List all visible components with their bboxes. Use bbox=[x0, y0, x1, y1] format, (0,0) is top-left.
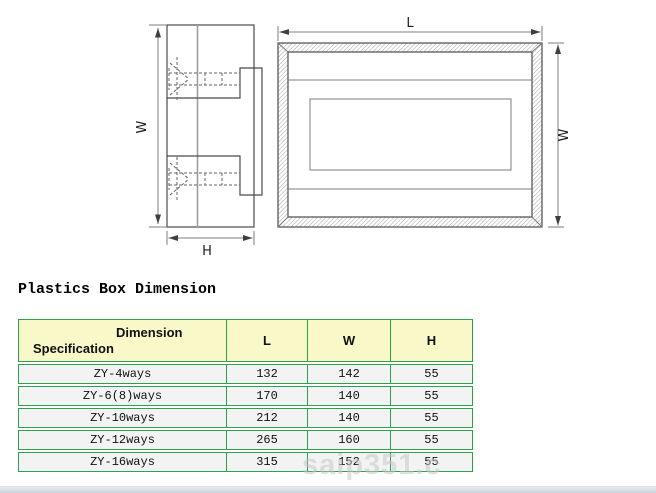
h-cell: 55 bbox=[391, 430, 473, 450]
h-cell: 55 bbox=[391, 364, 473, 384]
technical-drawings: W H L W bbox=[0, 0, 656, 272]
w-cell: 160 bbox=[308, 430, 391, 450]
w-cell: 140 bbox=[308, 408, 391, 428]
header-col-h: H bbox=[391, 319, 473, 362]
header-col-l: L bbox=[227, 319, 308, 362]
h-cell: 55 bbox=[391, 408, 473, 428]
h-cell: 55 bbox=[391, 386, 473, 406]
w-cell: 140 bbox=[308, 386, 391, 406]
w-cell: 152 bbox=[308, 452, 391, 472]
spec-cell: ZY-6(8)ways bbox=[18, 386, 227, 406]
l-cell: 212 bbox=[227, 408, 308, 428]
page: W H L W Plastics Box Dimen bbox=[0, 0, 656, 493]
table-header-row: Dimension Specification L W H bbox=[18, 319, 473, 362]
top-view-width-label: W bbox=[557, 128, 572, 141]
spec-cell: ZY-10ways bbox=[18, 408, 227, 428]
table-row: ZY-16ways 315 152 55 bbox=[18, 452, 473, 472]
l-cell: 170 bbox=[227, 386, 308, 406]
table-row: ZY-12ways 265 160 55 bbox=[18, 430, 473, 450]
bottom-bar bbox=[0, 486, 656, 493]
side-view-width-label: W bbox=[135, 120, 150, 133]
spec-cell: ZY-16ways bbox=[18, 452, 227, 472]
side-view-flange-profile bbox=[167, 68, 262, 195]
spec-cell: ZY-12ways bbox=[18, 430, 227, 450]
header-dimension-label: Dimension bbox=[116, 325, 182, 340]
w-cell: 142 bbox=[308, 364, 391, 384]
side-view-body-outline bbox=[167, 25, 254, 227]
l-cell: 265 bbox=[227, 430, 308, 450]
table-row: ZY-10ways 212 140 55 bbox=[18, 408, 473, 428]
side-view-height-label: H bbox=[202, 244, 212, 259]
table-row: ZY-4ways 132 142 55 bbox=[18, 364, 473, 384]
table-row: ZY-6(8)ways 170 140 55 bbox=[18, 386, 473, 406]
screw-hidden-lines-bottom bbox=[169, 157, 240, 201]
l-cell: 132 bbox=[227, 364, 308, 384]
l-cell: 315 bbox=[227, 452, 308, 472]
top-view-length-label: L bbox=[406, 16, 414, 31]
header-col-w: W bbox=[308, 319, 391, 362]
page-title: Plastics Box Dimension bbox=[18, 281, 216, 298]
dimension-table: Dimension Specification L W H ZY-4ways 1… bbox=[18, 317, 473, 474]
h-cell: 55 bbox=[391, 452, 473, 472]
spec-cell: ZY-4ways bbox=[18, 364, 227, 384]
top-view-inner-wall bbox=[288, 52, 532, 217]
side-view: W H bbox=[135, 25, 262, 259]
header-specification-label: Specification bbox=[33, 341, 114, 356]
top-view: L W bbox=[278, 16, 572, 227]
screw-hidden-lines-top bbox=[169, 57, 240, 101]
header-diagonal-cell: Dimension Specification bbox=[18, 319, 227, 362]
